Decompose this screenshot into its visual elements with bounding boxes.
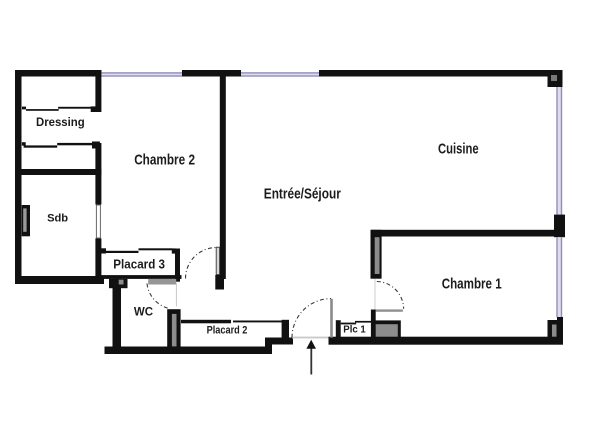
svg-text:Entrée/Séjour: Entrée/Séjour bbox=[264, 186, 341, 203]
svg-text:Dressing: Dressing bbox=[36, 115, 85, 129]
svg-text:Chambre 1: Chambre 1 bbox=[442, 276, 502, 292]
svg-text:Placard 2: Placard 2 bbox=[207, 325, 248, 337]
svg-text:WC: WC bbox=[134, 306, 154, 319]
svg-text:Chambre 2: Chambre 2 bbox=[134, 153, 195, 169]
svg-text:Placard 3: Placard 3 bbox=[113, 257, 165, 271]
svg-text:Cuisine: Cuisine bbox=[438, 141, 479, 157]
svg-text:Sdb: Sdb bbox=[47, 212, 68, 224]
svg-text:Plc 1: Plc 1 bbox=[343, 325, 366, 336]
